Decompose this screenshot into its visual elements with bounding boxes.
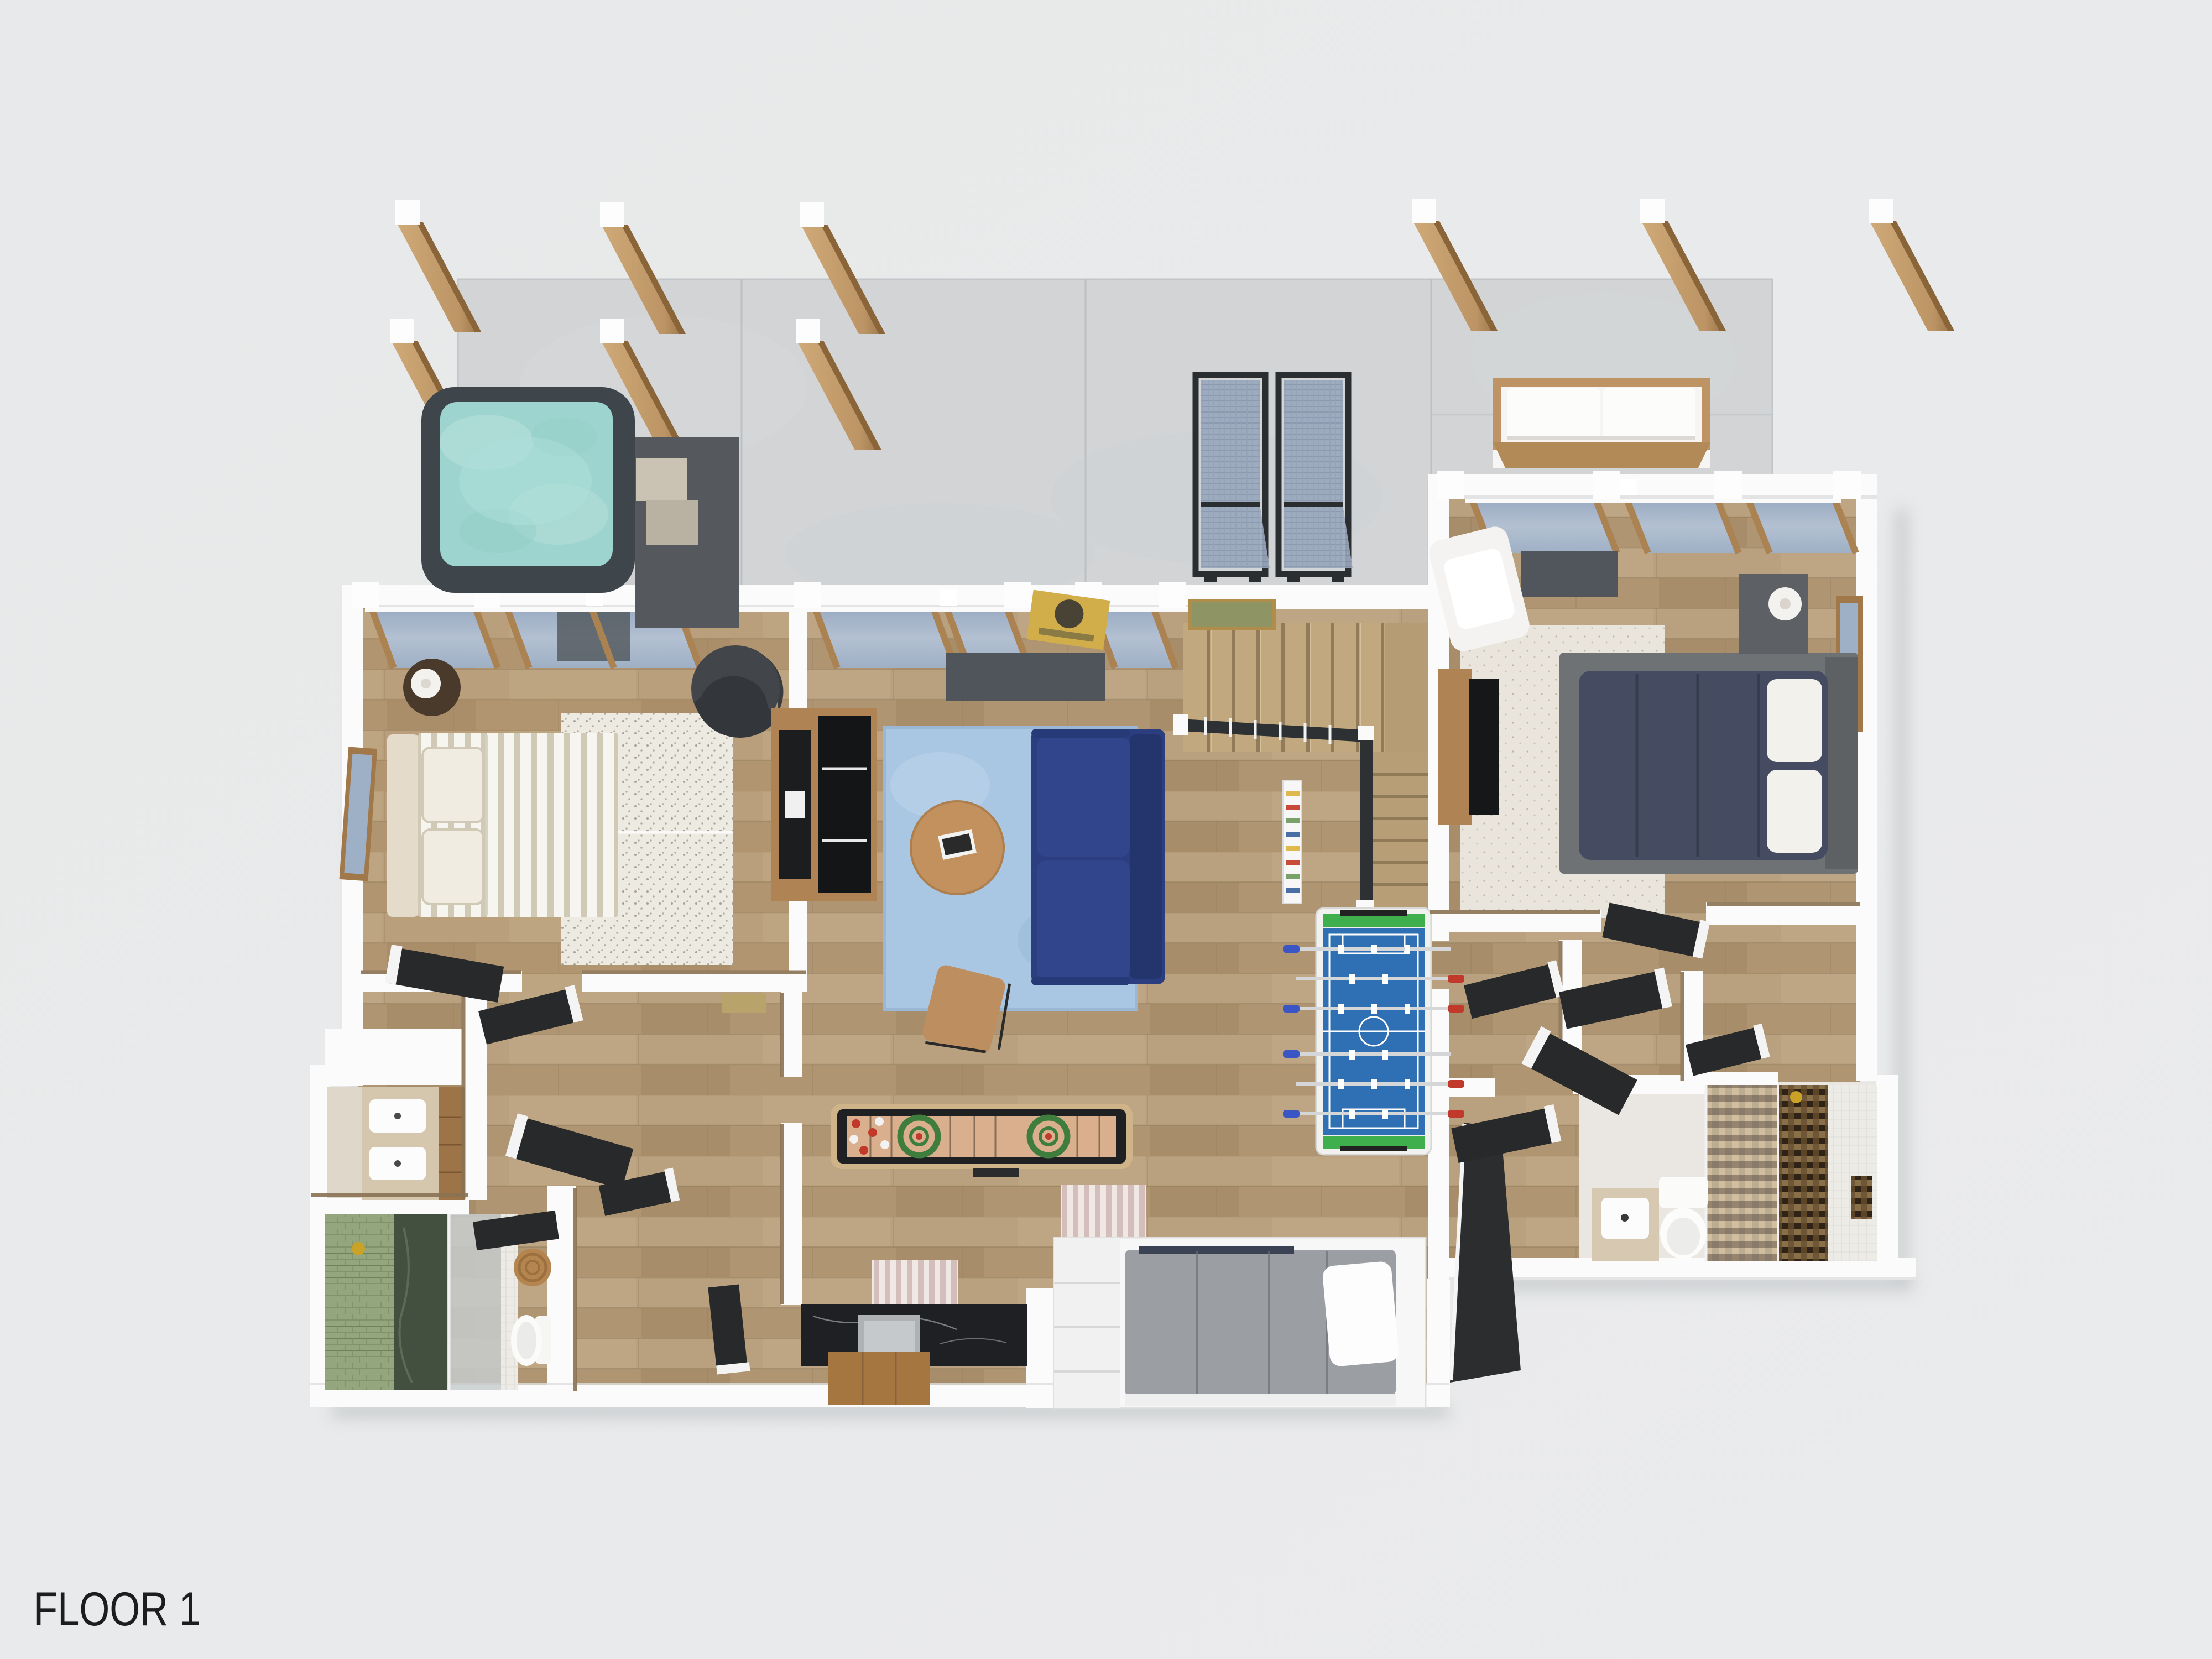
svg-text:FLOOR 1: FLOOR 1 bbox=[34, 1583, 201, 1636]
